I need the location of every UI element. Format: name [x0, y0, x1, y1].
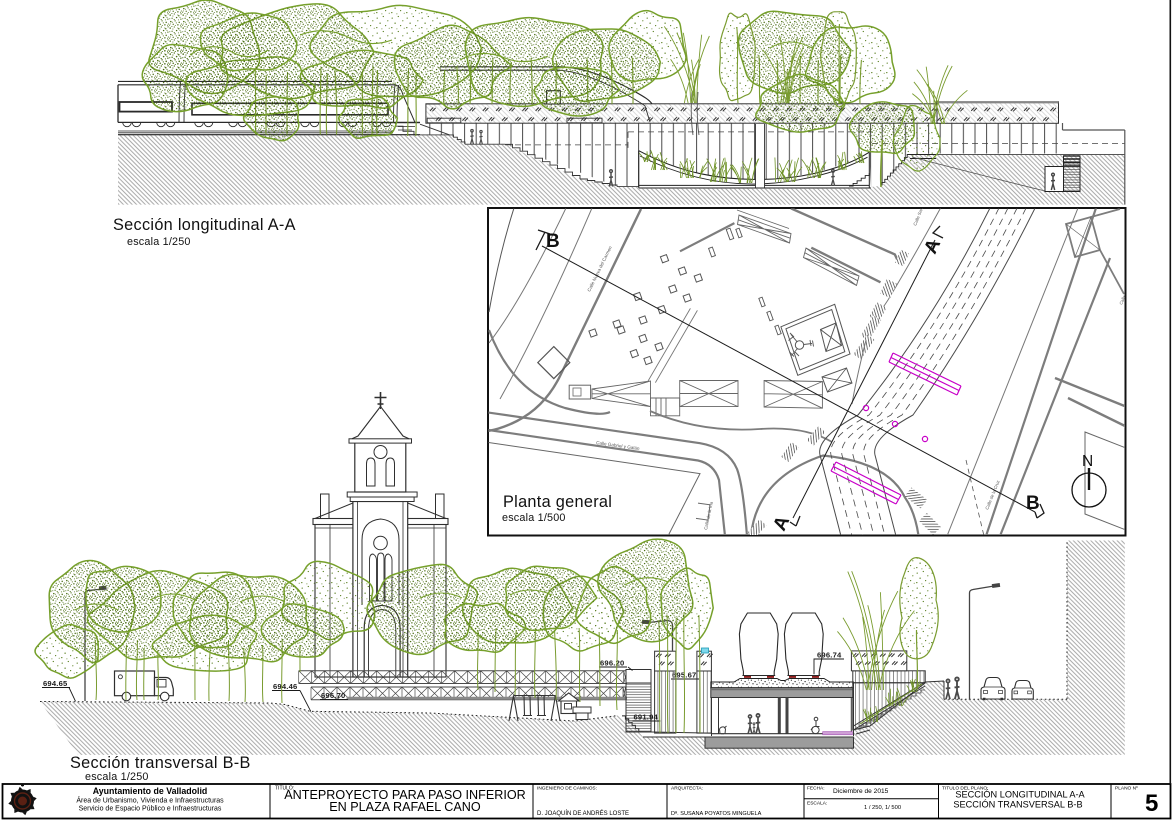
svg-text:FECHA:: FECHA:	[807, 786, 825, 792]
svg-text:SECCIÓN LONGITUDINAL A-A: SECCIÓN LONGITUDINAL A-A	[955, 790, 1085, 800]
svg-text:N: N	[1082, 453, 1093, 470]
svg-text:Sección transversal B-B: Sección transversal B-B	[70, 754, 251, 772]
svg-text:INGENIERO DE CAMINOS:: INGENIERO DE CAMINOS:	[537, 786, 597, 792]
svg-text:EN PLAZA RAFAEL CANO: EN PLAZA RAFAEL CANO	[329, 800, 481, 814]
svg-text:694.46: 694.46	[273, 682, 297, 691]
svg-text:escala 1/500: escala 1/500	[502, 512, 566, 524]
svg-text:Dª. SUSANA POYATOS MINGUELA: Dª. SUSANA POYATOS MINGUELA	[671, 810, 762, 817]
svg-text:691.94: 691.94	[634, 713, 659, 722]
svg-text:1 / 250, 1/ 500: 1 / 250, 1/ 500	[864, 805, 901, 811]
svg-text:SECCIÓN TRANSVERSAL B-B: SECCIÓN TRANSVERSAL B-B	[953, 800, 1082, 810]
svg-text:B: B	[1026, 493, 1040, 514]
svg-text:PLANO Nº: PLANO Nº	[1115, 786, 1138, 792]
svg-text:696.74: 696.74	[817, 651, 842, 660]
svg-text:escala 1/250: escala 1/250	[85, 771, 149, 783]
svg-text:D. JOAQUÍN DE ANDRÉS LOSTE: D. JOAQUÍN DE ANDRÉS LOSTE	[537, 810, 629, 817]
svg-text:Área de Urbanismo, Vivienda e: Área de Urbanismo, Vivienda e Infraestru…	[76, 796, 224, 805]
svg-text:Diciembre de 2015: Diciembre de 2015	[833, 788, 889, 795]
svg-text:694.65: 694.65	[43, 679, 68, 688]
svg-text:ARQUITECTA:: ARQUITECTA:	[671, 786, 703, 792]
svg-text:Planta general: Planta general	[503, 493, 612, 511]
svg-text:696.20: 696.20	[600, 659, 624, 668]
svg-text:B: B	[546, 231, 560, 252]
svg-text:5: 5	[1145, 790, 1158, 817]
svg-text:Servicio de Espacio Público e: Servicio de Espacio Público e Infraestru…	[79, 806, 222, 813]
svg-text:ESCALA:: ESCALA:	[807, 801, 827, 807]
svg-text:Sección longitudinal A-A: Sección longitudinal A-A	[113, 216, 296, 234]
svg-text:Ayuntamiento de Valladolid: Ayuntamiento de Valladolid	[93, 786, 208, 796]
svg-text:696.70: 696.70	[321, 691, 345, 700]
svg-text:escala 1/250: escala 1/250	[127, 236, 191, 248]
